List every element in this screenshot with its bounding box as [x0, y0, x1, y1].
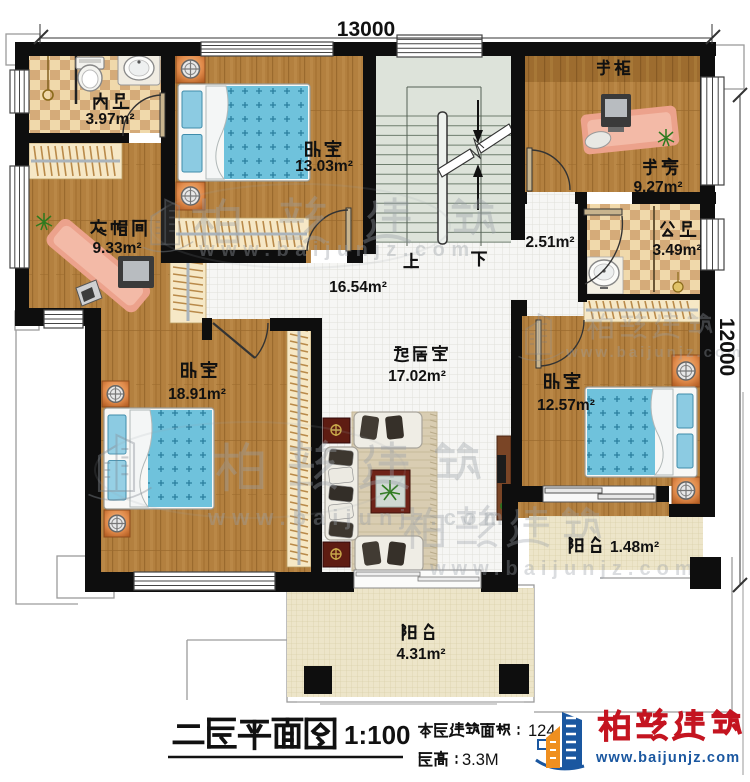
svg-text:3.49m²: 3.49m² [652, 242, 701, 259]
svg-text:www.baijunjz.com: www.baijunjz.com [198, 239, 476, 261]
svg-text:9.27m²: 9.27m² [633, 179, 682, 196]
svg-text:9.33m²: 9.33m² [92, 240, 141, 257]
svg-text:www.baijunjz.com: www.baijunjz.com [595, 750, 740, 766]
svg-text:3.3M: 3.3M [462, 751, 499, 769]
svg-text:www.baijunjz.com: www.baijunjz.com [429, 558, 699, 580]
svg-text:3.97m²: 3.97m² [85, 111, 134, 128]
svg-text:16.54m²: 16.54m² [329, 279, 387, 296]
svg-text:12.57m²: 12.57m² [537, 397, 595, 414]
svg-text:12000: 12000 [715, 318, 738, 376]
svg-text:17.02m²: 17.02m² [388, 368, 446, 385]
svg-text:18.91m²: 18.91m² [168, 386, 226, 403]
svg-text:4.31m²: 4.31m² [396, 646, 445, 663]
svg-text:13000: 13000 [337, 18, 395, 41]
svg-text:1:100: 1:100 [344, 720, 411, 750]
svg-text:13.03m²: 13.03m² [295, 158, 353, 175]
svg-text:2.51m²: 2.51m² [525, 234, 574, 251]
svg-text:1.48m²: 1.48m² [610, 539, 659, 556]
